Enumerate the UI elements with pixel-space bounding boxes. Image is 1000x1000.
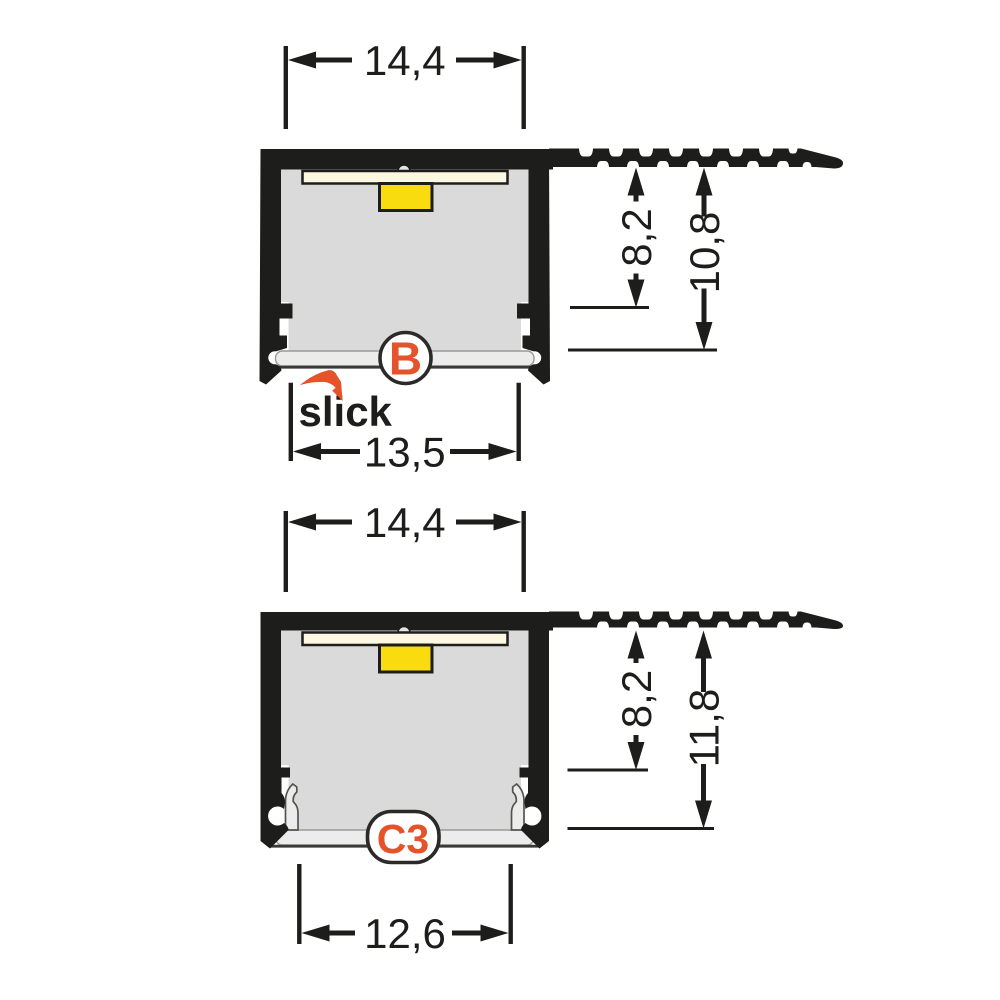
svg-text:11,8: 11,8 xyxy=(681,689,728,768)
svg-text:C3: C3 xyxy=(377,816,429,862)
svg-text:13,5: 13,5 xyxy=(364,429,446,476)
svg-text:8,2: 8,2 xyxy=(613,670,660,728)
svg-text:B: B xyxy=(389,333,422,385)
svg-text:14,4: 14,4 xyxy=(364,499,446,546)
svg-text:10,8: 10,8 xyxy=(681,212,728,294)
svg-text:14,4: 14,4 xyxy=(364,37,446,84)
svg-text:12,6: 12,6 xyxy=(364,910,446,957)
svg-text:8,2: 8,2 xyxy=(613,208,660,266)
